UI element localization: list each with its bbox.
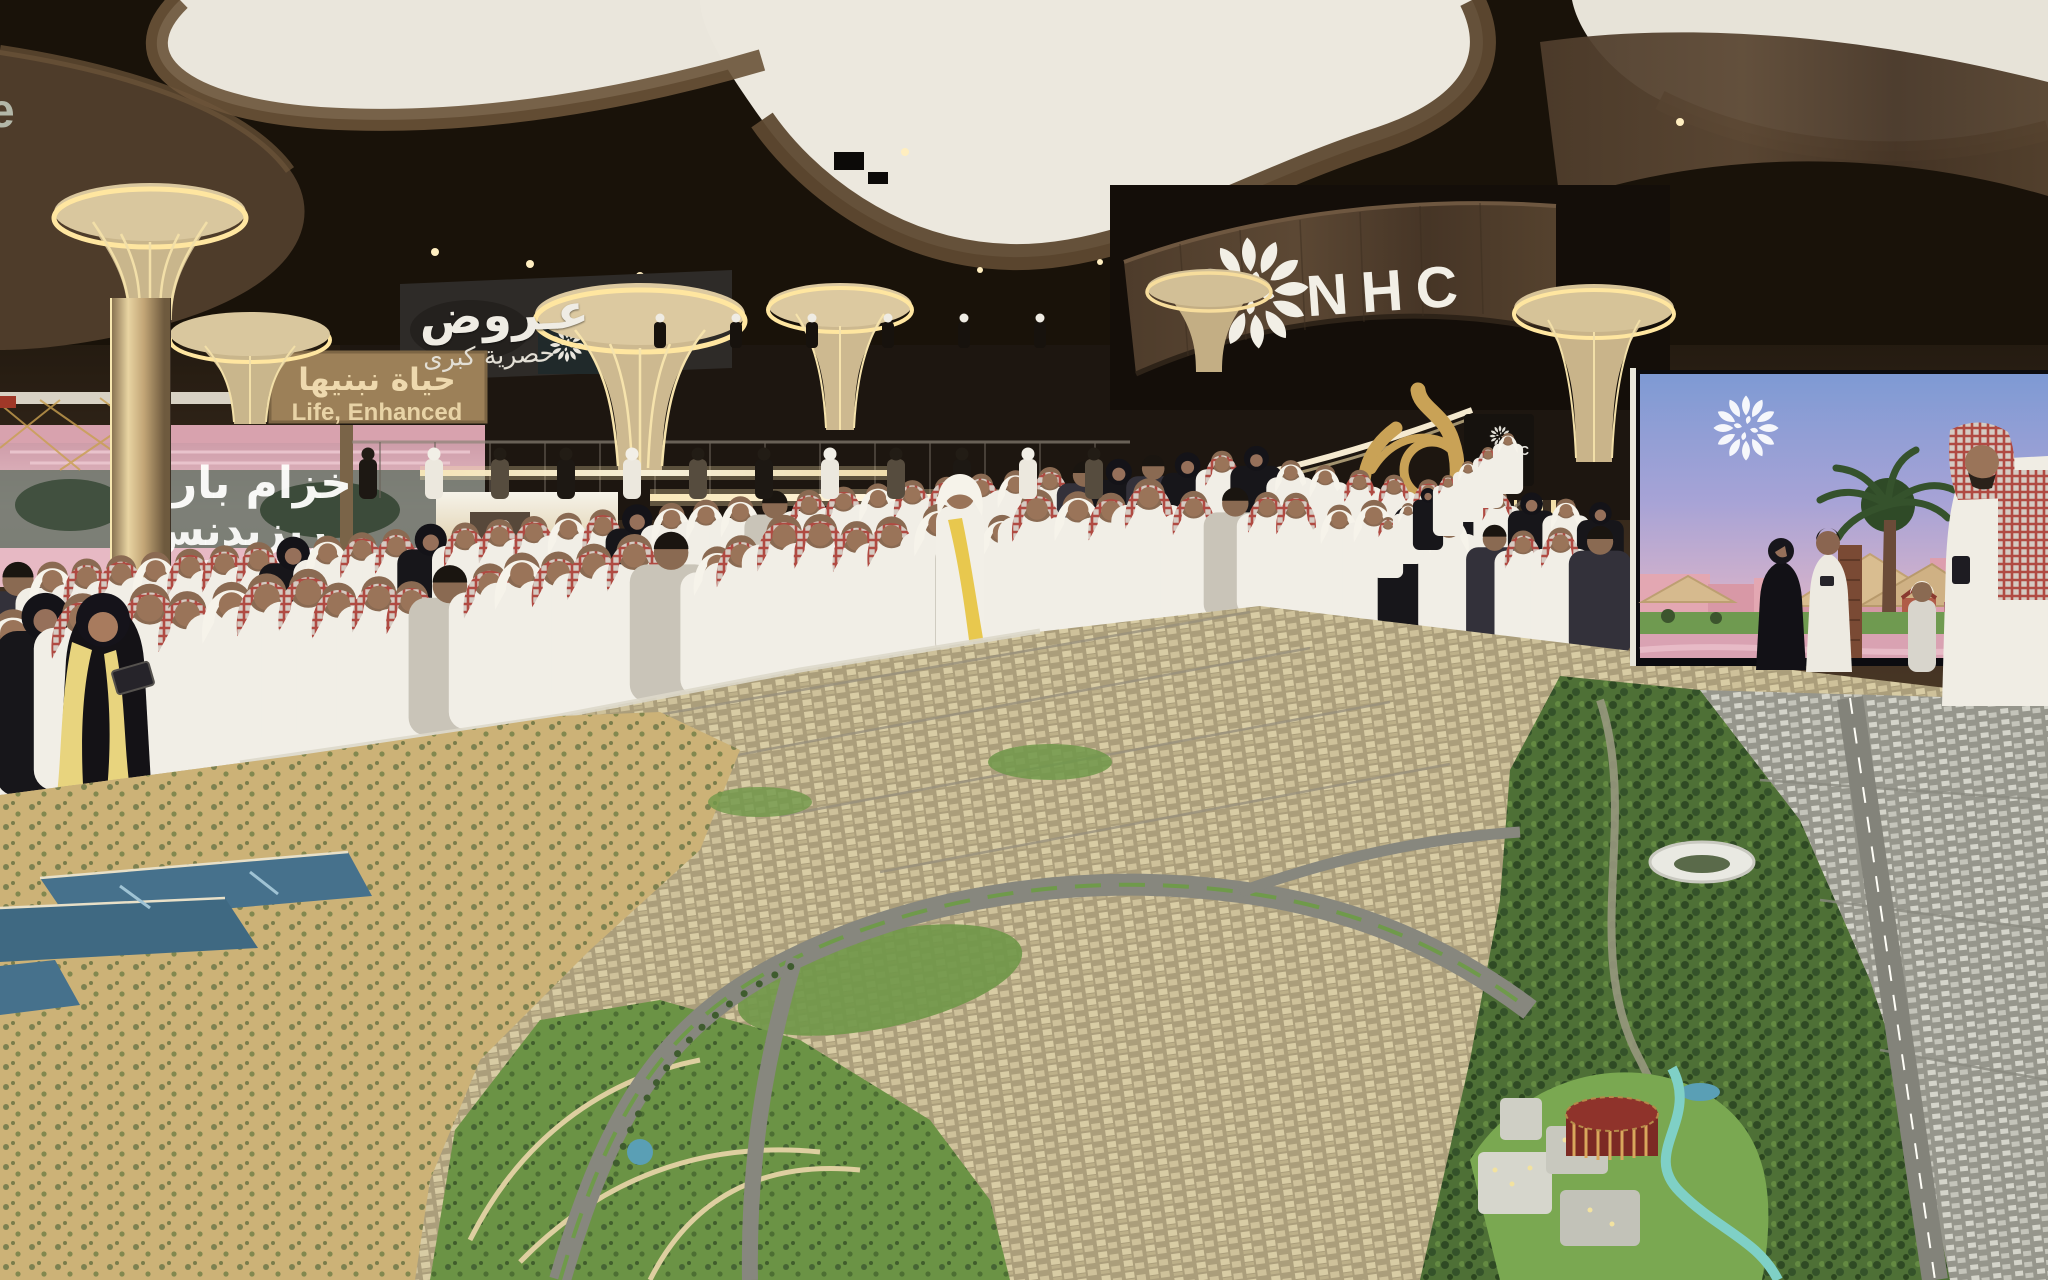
man-with-yellow-sash (936, 474, 984, 658)
exhibition-hall-photo: e عـروض حصرية كبرى حياة نبنيها Life, Enh… (0, 0, 2048, 1280)
model-stadium (1650, 842, 1754, 882)
foreground-scene (0, 0, 2048, 1280)
foreground-man-right (1942, 422, 2048, 706)
